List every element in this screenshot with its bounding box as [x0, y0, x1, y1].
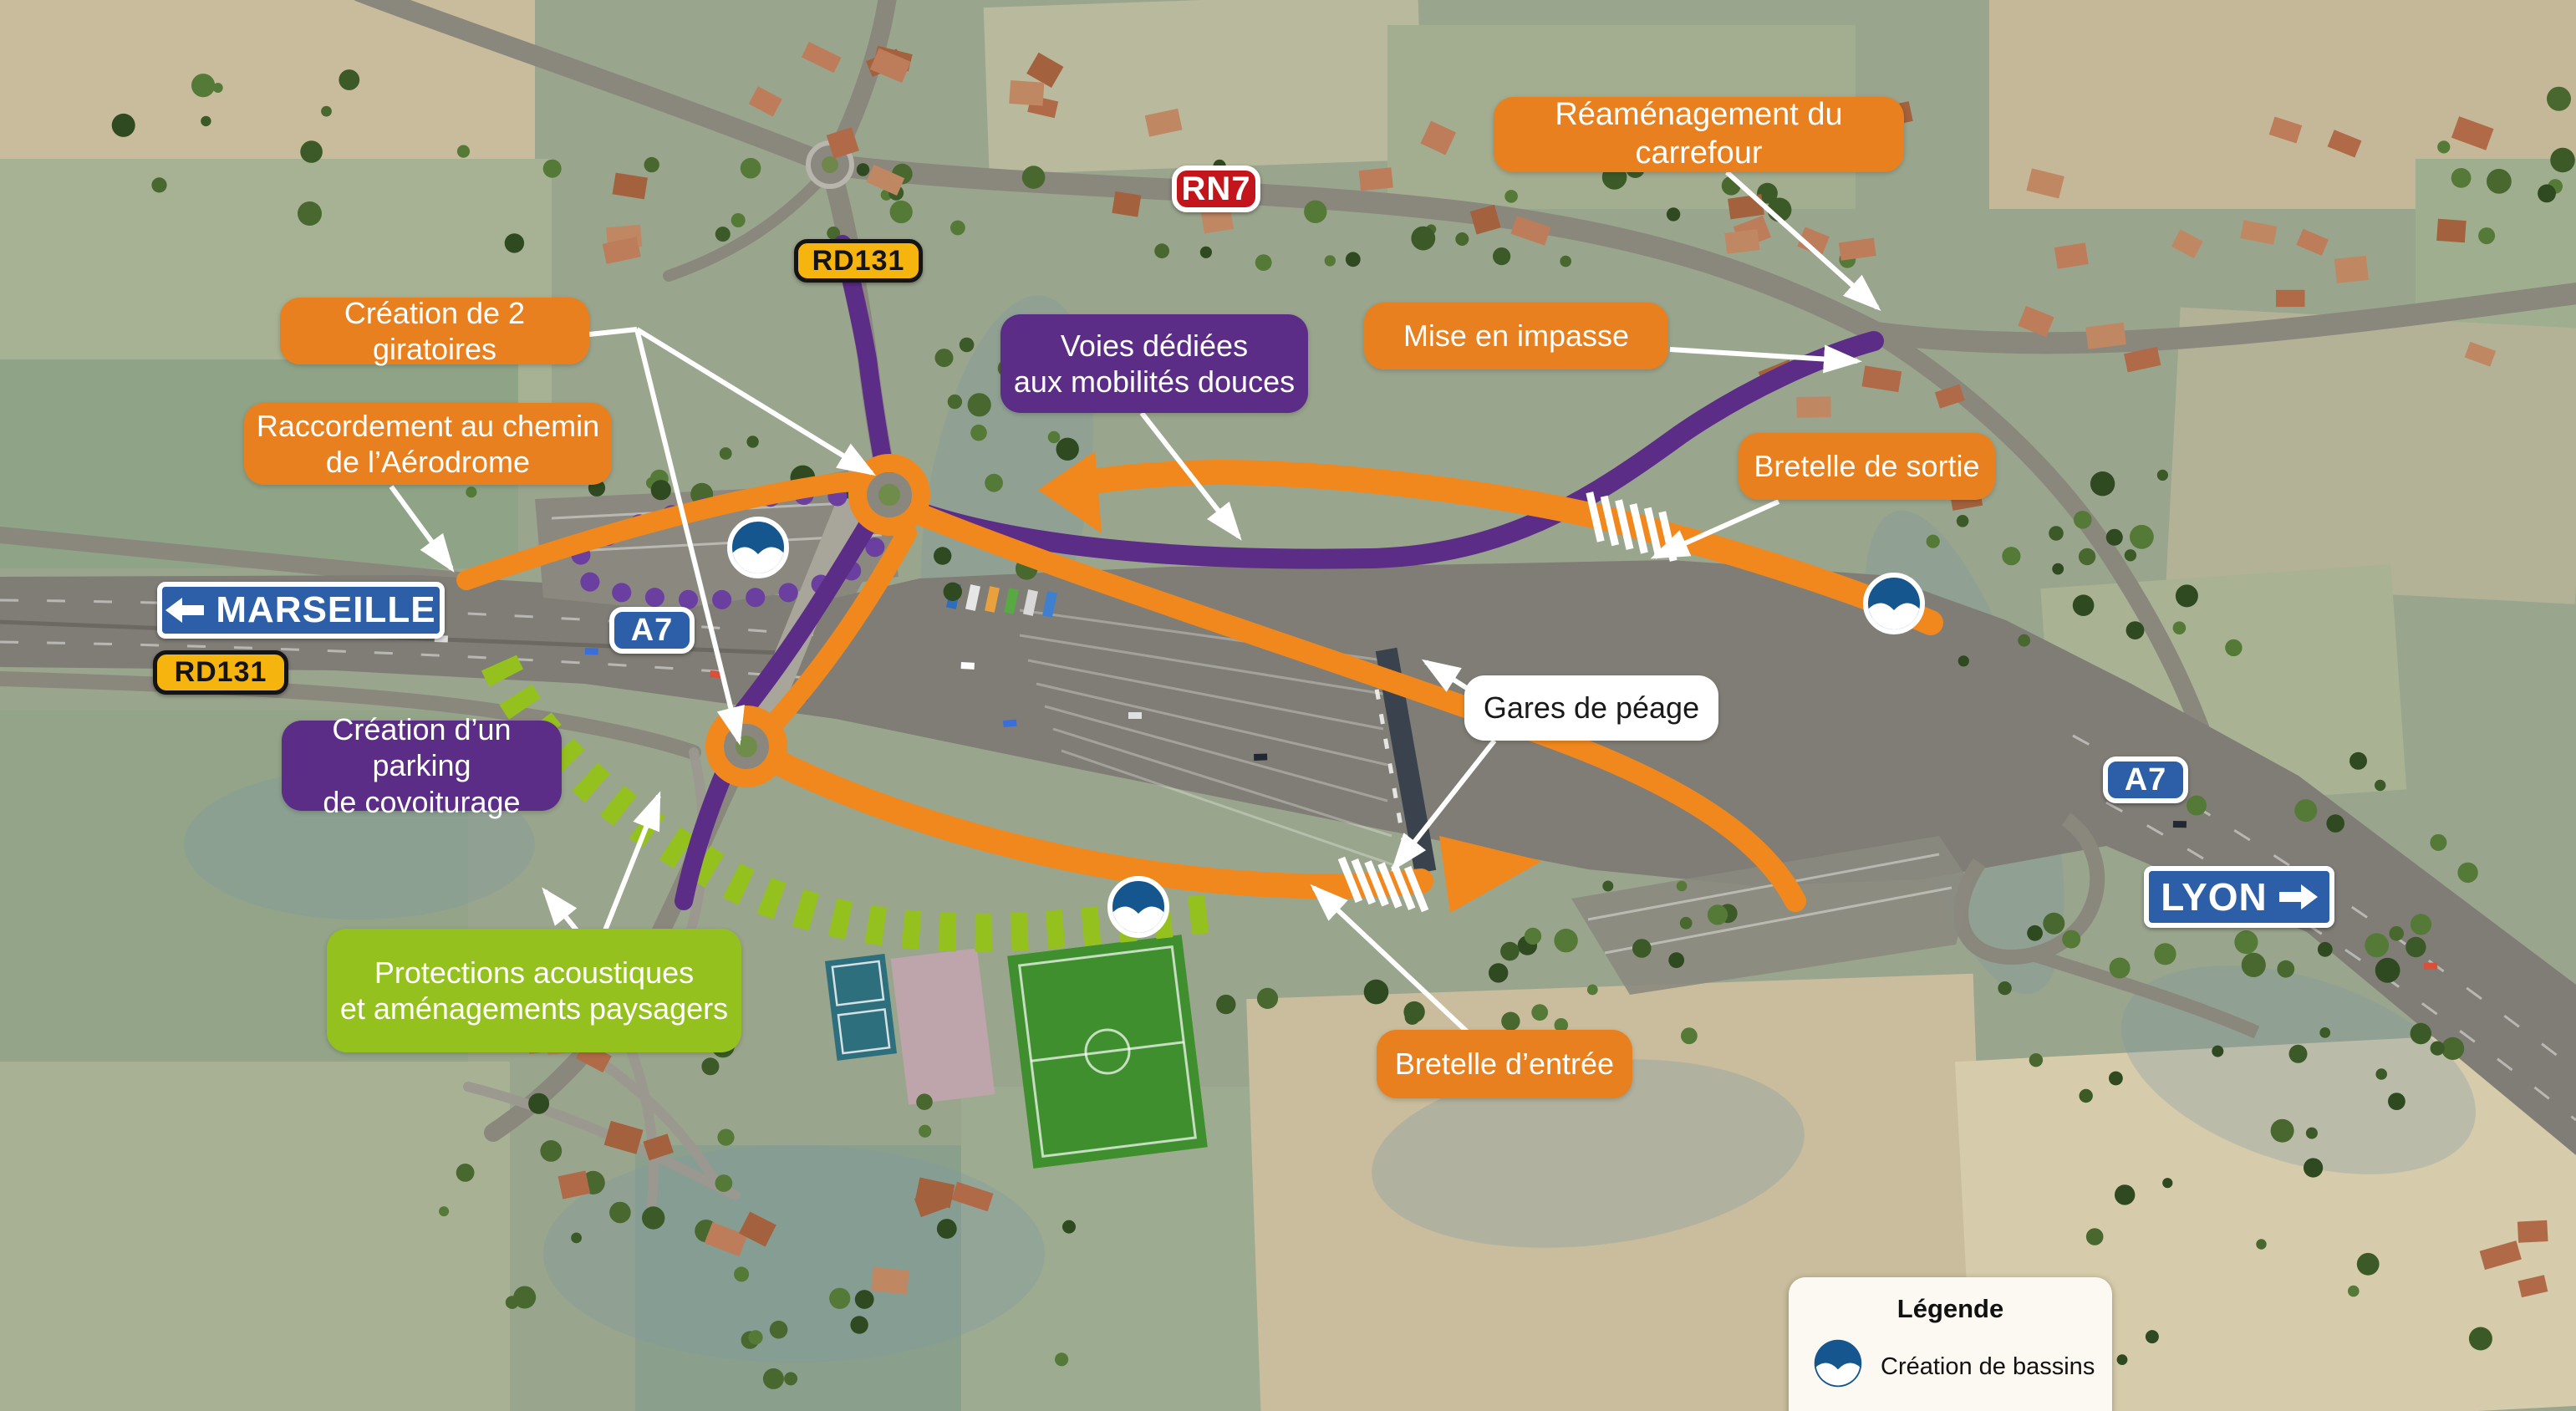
bassin-icon: [1812, 1337, 1864, 1396]
sign-text: MARSEILLE: [216, 589, 435, 631]
sign-rd131: RD131: [794, 239, 923, 283]
sign-lyon: LYON: [2144, 866, 2334, 928]
annotation-text: Voies dédiées aux mobilités douces: [1014, 328, 1295, 400]
annotation-bretelle-de-sortie: Bretelle de sortie: [1739, 433, 1995, 500]
annotation-text: Création d’un parking de covoiturage: [282, 711, 562, 820]
annotation-voies-mobilites-douces: Voies dédiées aux mobilités douces: [1000, 314, 1308, 413]
sign-text: RN7: [1181, 171, 1250, 208]
sign-a7: A7: [2103, 756, 2188, 803]
sign-rn7: RN7: [1172, 166, 1260, 212]
roundabout-south: [715, 715, 778, 778]
annotation-protections-acoustiques: Protections acoustiques et aménagements …: [327, 929, 741, 1052]
annotation-reamenagement-du-carrefour: Réaménagement du carrefour: [1494, 97, 1904, 172]
annotation-text: Protections acoustiques et aménagements …: [340, 955, 728, 1026]
annotation-gares-de-peage: Gares de péage: [1464, 675, 1718, 741]
annotation-bretelle-entree: Bretelle d’entrée: [1377, 1030, 1632, 1098]
left-arrow-icon: [165, 598, 204, 623]
annotation-text: Raccordement au chemin de l’Aérodrome: [257, 408, 599, 480]
annotation-creation-giratoires: Création de 2 giratoires: [280, 298, 589, 364]
sign-marseille: MARSEILLE: [157, 582, 445, 639]
sign-text: LYON: [2161, 874, 2268, 919]
annotation-raccordement-aerodrome: Raccordement au chemin de l’Aérodrome: [244, 403, 612, 485]
legend-title: Légende: [1789, 1294, 2112, 1324]
annotation-text: Bretelle de sortie: [1754, 448, 1979, 484]
sign-text: RD131: [175, 656, 267, 689]
map-legend: Légende Création de bassins: [1789, 1277, 2112, 1411]
annotation-text: Mise en impasse: [1403, 318, 1629, 354]
sign-rd131: RD131: [153, 650, 288, 695]
annotation-mise-en-impasse: Mise en impasse: [1364, 303, 1668, 369]
annotation-text: Bretelle d’entrée: [1395, 1046, 1614, 1082]
legend-item-label: Création de bassins: [1881, 1353, 2095, 1381]
annotation-text: Création de 2 giratoires: [280, 295, 589, 367]
annotation-text: Gares de péage: [1484, 690, 1699, 726]
right-arrow-icon: [2279, 884, 2318, 909]
annotation-parking-covoiturage: Création d’un parking de covoiturage: [282, 721, 562, 811]
aerial-project-map: Réaménagement du carrefour Création de 2…: [0, 0, 2576, 1411]
legend-item-bassins: Création de bassins: [1812, 1337, 2112, 1396]
sign-a7: A7: [609, 607, 695, 654]
annotation-text: Réaménagement du carrefour: [1494, 96, 1904, 172]
sign-text: A7: [2125, 762, 2167, 798]
sign-text: RD131: [812, 245, 905, 278]
map-graphics: [0, 0, 2576, 1411]
sign-text: A7: [631, 613, 674, 649]
